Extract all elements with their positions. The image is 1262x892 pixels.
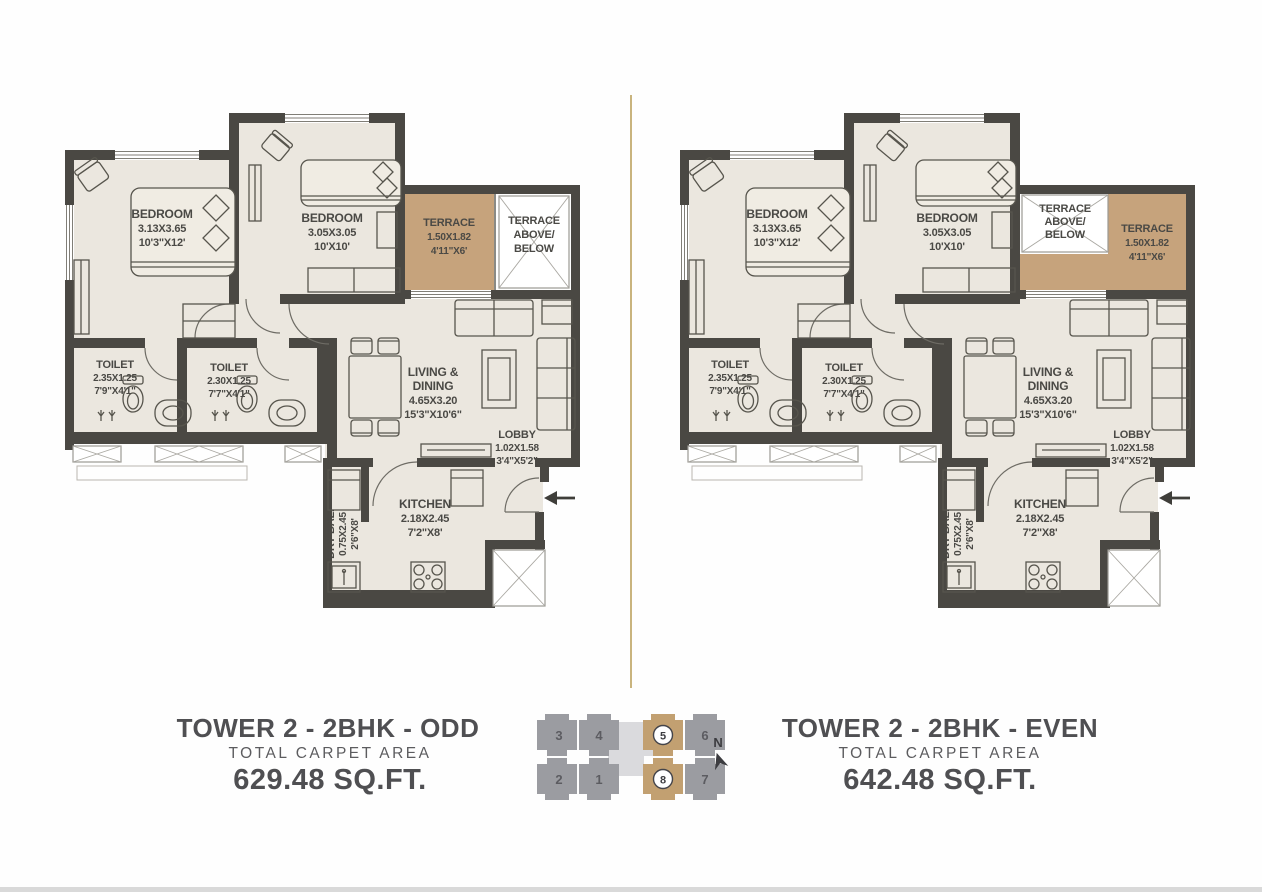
living-l1: LIVING & xyxy=(1023,365,1074,379)
toilet1-dim-m: 2.35X1.25 xyxy=(708,373,752,384)
floorplan-svg: BEDROOM 3.13X3.65 10'3"X12' BEDROOM 3.05… xyxy=(0,0,1262,892)
bedroom2-dim-m: 3.05X3.05 xyxy=(308,227,356,239)
toilet1-dim-ft: 7'9"X4'1" xyxy=(94,386,136,397)
terrace-name: TERRACE xyxy=(1121,223,1173,235)
lobby-dim-m: 1.02X1.58 xyxy=(1110,443,1154,454)
brochure-page: BEDROOM 3.13X3.65 10'3"X12' BEDROOM 3.05… xyxy=(0,0,1262,892)
terrace-void-l2: ABOVE/ xyxy=(1045,216,1086,228)
terrace-dim-m: 1.50X1.82 xyxy=(427,232,471,243)
terrace-void-l3: BELOW xyxy=(514,243,555,255)
toilet2-dim-m: 2.30X1.25 xyxy=(822,376,866,387)
living-dim-ft: 15'3"X10'6" xyxy=(404,409,462,421)
kitchen-name: KITCHEN xyxy=(399,497,451,511)
bedroom2-dim-ft: 10'X10' xyxy=(314,241,350,253)
keyplan-unit-1-label: 1 xyxy=(595,772,602,787)
lobby-name: LOBBY xyxy=(1113,429,1151,441)
plan-title-even: TOWER 2 - 2BHK - EVEN xyxy=(782,713,1098,743)
keyplan-unit-2: 2 xyxy=(537,758,577,800)
bedroom2-name: BEDROOM xyxy=(301,211,362,225)
keyplan-unit-2-label: 2 xyxy=(555,772,562,787)
terrace-void-l2: ABOVE/ xyxy=(514,229,555,241)
keyplan-unit-4: 4 xyxy=(579,714,619,756)
bedroom2-dim-m: 3.05X3.05 xyxy=(923,227,971,239)
living-l2: DINING xyxy=(413,379,454,393)
toilet2-name: TOILET xyxy=(825,362,863,374)
terrace-dim-ft: 4'11"X6' xyxy=(431,246,467,257)
plan-title-odd: TOWER 2 - 2BHK - ODD xyxy=(177,713,480,743)
lobby-dim-ft: 3'4"X5'2" xyxy=(496,456,538,467)
living-l1: LIVING & xyxy=(408,365,459,379)
plan-subtitle-odd: TOTAL CARPET AREA xyxy=(228,745,431,762)
living-dim-m: 4.65X3.20 xyxy=(1024,395,1072,407)
toilet2-dim-ft: 7'7"X4'1" xyxy=(208,389,250,400)
living-dim-ft: 15'3"X10'6" xyxy=(1019,409,1077,421)
keyplan-unit-3-label: 3 xyxy=(555,728,562,743)
page-bottom-edge xyxy=(0,887,1262,892)
toilet2-dim-m: 2.30X1.25 xyxy=(207,376,251,387)
plan-area-even: 642.48 SQ.FT. xyxy=(843,764,1037,796)
drybal-dim-ft: 2'6"X8' xyxy=(350,518,361,549)
terrace-void-l1: TERRACE xyxy=(1039,203,1091,215)
bedroom1-dim-m: 3.13X3.65 xyxy=(138,223,186,235)
living-l2: DINING xyxy=(1028,379,1069,393)
keyplan-unit-7-label: 7 xyxy=(701,772,708,787)
drybal-name: DRY BAL. xyxy=(325,509,337,559)
north-label: N xyxy=(713,735,722,750)
bedroom2-dim-ft: 10'X10' xyxy=(929,241,965,253)
keyplan-unit-5-highlighted: 5 xyxy=(643,714,683,756)
toilet2-dim-ft: 7'7"X4'1" xyxy=(823,389,865,400)
toilet2-name: TOILET xyxy=(210,362,248,374)
bedroom2-name: BEDROOM xyxy=(916,211,977,225)
kitchen-dim-ft: 7'2"X8' xyxy=(1023,527,1058,539)
keyplan-unit-5-label: 5 xyxy=(660,731,666,743)
kitchen-name: KITCHEN xyxy=(1014,497,1066,511)
drybal-name: DRY BAL. xyxy=(940,509,952,559)
kitchen-dim-m: 2.18X2.45 xyxy=(1016,513,1064,525)
terrace-void-l1: TERRACE xyxy=(508,215,560,227)
keyplan-unit-3: 3 xyxy=(537,714,577,756)
lobby-dim-m: 1.02X1.58 xyxy=(495,443,539,454)
toilet1-name: TOILET xyxy=(96,359,134,371)
kitchen-dim-ft: 7'2"X8' xyxy=(408,527,443,539)
drybal-dim-ft: 2'6"X8' xyxy=(965,518,976,549)
bedroom1-dim-ft: 10'3"X12' xyxy=(754,237,801,249)
keyplan-unit-4-label: 4 xyxy=(595,728,603,743)
toilet1-dim-m: 2.35X1.25 xyxy=(93,373,137,384)
lobby-name: LOBBY xyxy=(498,429,536,441)
keyplan-unit-6-label: 6 xyxy=(701,728,708,743)
bedroom1-dim-ft: 10'3"X12' xyxy=(139,237,186,249)
bedroom1-dim-m: 3.13X3.65 xyxy=(753,223,801,235)
plan-area-odd: 629.48 SQ.FT. xyxy=(233,764,427,796)
toilet1-name: TOILET xyxy=(711,359,749,371)
drybal-dim-m: 0.75X2.45 xyxy=(338,511,349,555)
kitchen-dim-m: 2.18X2.45 xyxy=(401,513,449,525)
living-dim-m: 4.65X3.20 xyxy=(409,395,457,407)
divider-line xyxy=(630,95,632,688)
terrace-void-l3: BELOW xyxy=(1045,229,1086,241)
terrace-dim-ft: 4'11"X6' xyxy=(1129,252,1165,263)
terrace-dim-m: 1.50X1.82 xyxy=(1125,238,1169,249)
toilet1-dim-ft: 7'9"X4'1" xyxy=(709,386,751,397)
lobby-dim-ft: 3'4"X5'2" xyxy=(1111,456,1153,467)
drybal-dim-m: 0.75X2.45 xyxy=(953,511,964,555)
plan-subtitle-even: TOTAL CARPET AREA xyxy=(838,745,1041,762)
bedroom1-name: BEDROOM xyxy=(746,207,807,221)
bedroom1-name: BEDROOM xyxy=(131,207,192,221)
keyplan-unit-8-label: 8 xyxy=(660,775,666,787)
terrace-name: TERRACE xyxy=(423,217,475,229)
keyplan-unit-8-highlighted: 8 xyxy=(643,758,683,800)
keyplan-unit-1: 1 xyxy=(579,758,619,800)
